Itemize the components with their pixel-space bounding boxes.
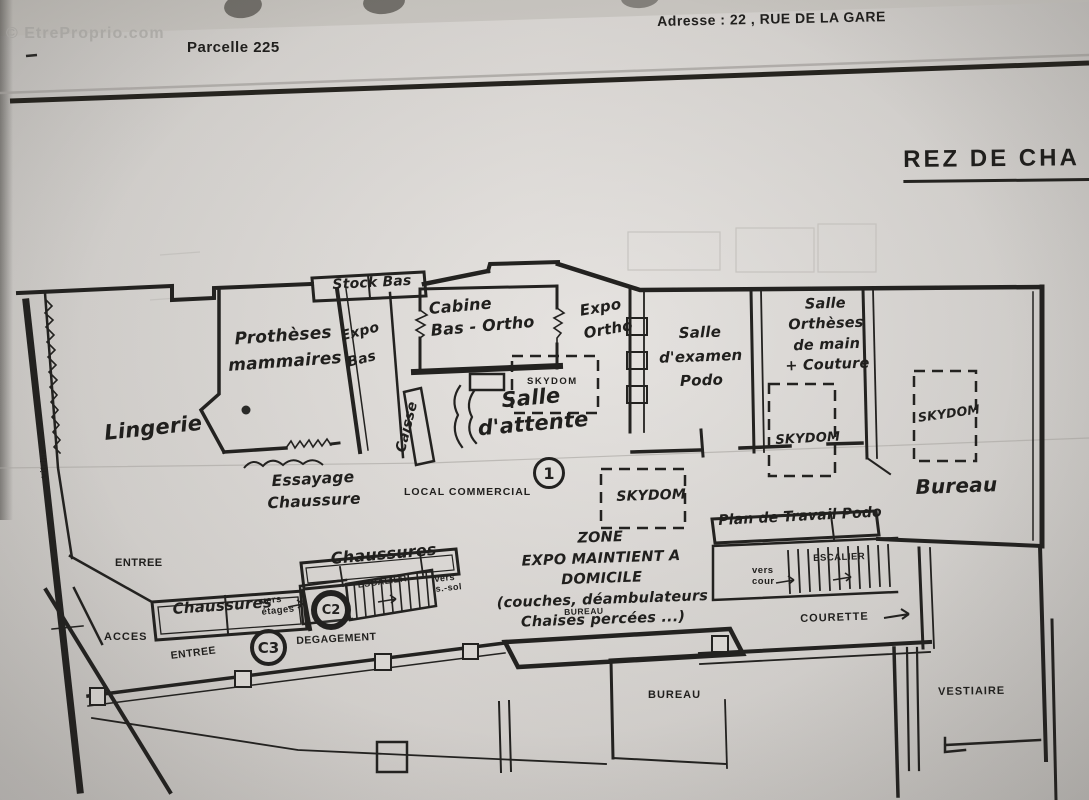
room-label-expo-ortho: Expo Ortho: [578, 291, 634, 344]
label-vers-cour: vers cour: [752, 565, 775, 588]
room-label-zone-expo-maintien-domicile: ZONE EXPO MAINTIENT A DOMICILE (couches,…: [480, 524, 723, 635]
corridor-pillars: [90, 636, 728, 705]
room-label-protheses-mammaires: Prothèses mammaires: [225, 320, 343, 379]
skydom-label-2: SKYDOM: [775, 430, 841, 450]
label-vers-etages: vers étages: [260, 594, 295, 619]
label-vers-sous-sol: vers s.-sol: [434, 571, 463, 594]
room-label-salle-attente: Salle d'attente: [470, 380, 594, 443]
ink-blot: [242, 406, 251, 415]
sleeve-reflection-line: [0, 55, 1089, 93]
room-label-salle-ortheses: Salle Orthèses de main + Couture: [770, 292, 883, 377]
label-escalier-droit: ESCALIER: [813, 551, 865, 565]
page-dash: [26, 55, 37, 56]
scanned-floor-plan-photo: © EtreProprio.com Parcelle 225 Adresse :…: [0, 0, 1089, 800]
floor-title: REZ DE CHA: [903, 142, 1089, 183]
skydom-label-4: SKYDOM: [616, 486, 686, 507]
marker-c3: C3: [250, 629, 287, 666]
label-local-commercial: LOCAL COMMERCIAL: [404, 486, 531, 500]
label-bureau-petit: BUREAU: [564, 606, 604, 618]
label-courette: COURETTE: [800, 610, 869, 627]
skydom-label-1: SKYDOM: [527, 376, 578, 388]
room-label-bureau-droit: Bureau: [915, 471, 998, 500]
watermark: © EtreProprio.com: [6, 24, 165, 45]
label-vestiaire: VESTIAIRE: [938, 684, 1005, 699]
label-acces: ACCES: [104, 630, 148, 644]
label-bureau-bas: BUREAU: [648, 688, 701, 702]
label-vitrine: vitrine: [38, 449, 49, 478]
room-label-essayage-chaussure: Essayage Chaussure: [255, 466, 372, 515]
marker-c2: C2: [311, 590, 351, 630]
label-entree-haut: ENTREE: [115, 556, 163, 570]
room-label-cabine-bas-ortho: Cabine Bas - Ortho: [428, 289, 535, 341]
header-rule: [10, 63, 1089, 101]
marker-zone-1: 1: [533, 457, 565, 489]
room-label-salle-examen-podo: Salle d'examen Podo: [652, 319, 749, 394]
parcel-label: Parcelle 225: [187, 38, 280, 58]
